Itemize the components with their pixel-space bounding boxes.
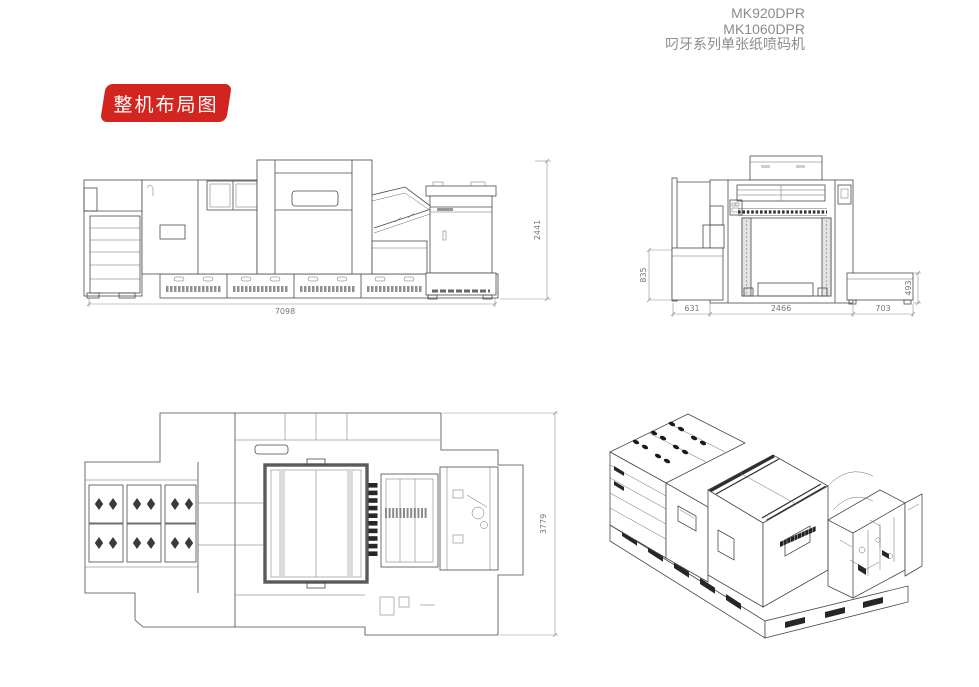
delivery-unit <box>426 182 496 299</box>
dim-left-height-label: 835 <box>639 267 648 282</box>
dim-overall-depth-label: 3779 <box>539 514 548 534</box>
front-elevation-drawing: 835 631 2466 703 493 <box>620 148 930 323</box>
iso-delivery-machinery <box>828 472 922 598</box>
dim-left-width-label: 631 <box>684 304 699 313</box>
model-name-1: MK920DPR <box>665 6 805 22</box>
section-badge: 整机布局图 <box>103 84 229 122</box>
product-subtitle: 叼牙系列单张纸喷码机 <box>665 37 805 53</box>
catalog-page: MK920DPR MK1060DPR 叼牙系列单张纸喷码机 整机布局图 <box>0 0 979 687</box>
isometric-view-drawing <box>600 390 979 655</box>
product-title-block: MK920DPR MK1060DPR 叼牙系列单张纸喷码机 <box>665 6 805 53</box>
front-body <box>710 156 853 303</box>
feeder-tower <box>84 180 142 298</box>
mid-body <box>142 180 260 274</box>
plan-view-drawing: 3779 <box>75 395 570 650</box>
print-tower <box>257 160 372 274</box>
dim-overall-width-label: 7098 <box>275 307 295 316</box>
center-table <box>265 459 367 588</box>
side-elevation-drawing: 7098 2441 <box>75 148 565 323</box>
model-name-2: MK1060DPR <box>665 22 805 38</box>
dim-right-height-label: 493 <box>904 280 913 295</box>
dim-right-width-label: 703 <box>875 304 890 313</box>
dim-body-width-label: 2466 <box>771 304 791 313</box>
section-badge-label: 整机布局图 <box>103 84 229 122</box>
dim-overall-height-label: 2441 <box>533 220 542 240</box>
conveyor-arm <box>372 187 433 274</box>
